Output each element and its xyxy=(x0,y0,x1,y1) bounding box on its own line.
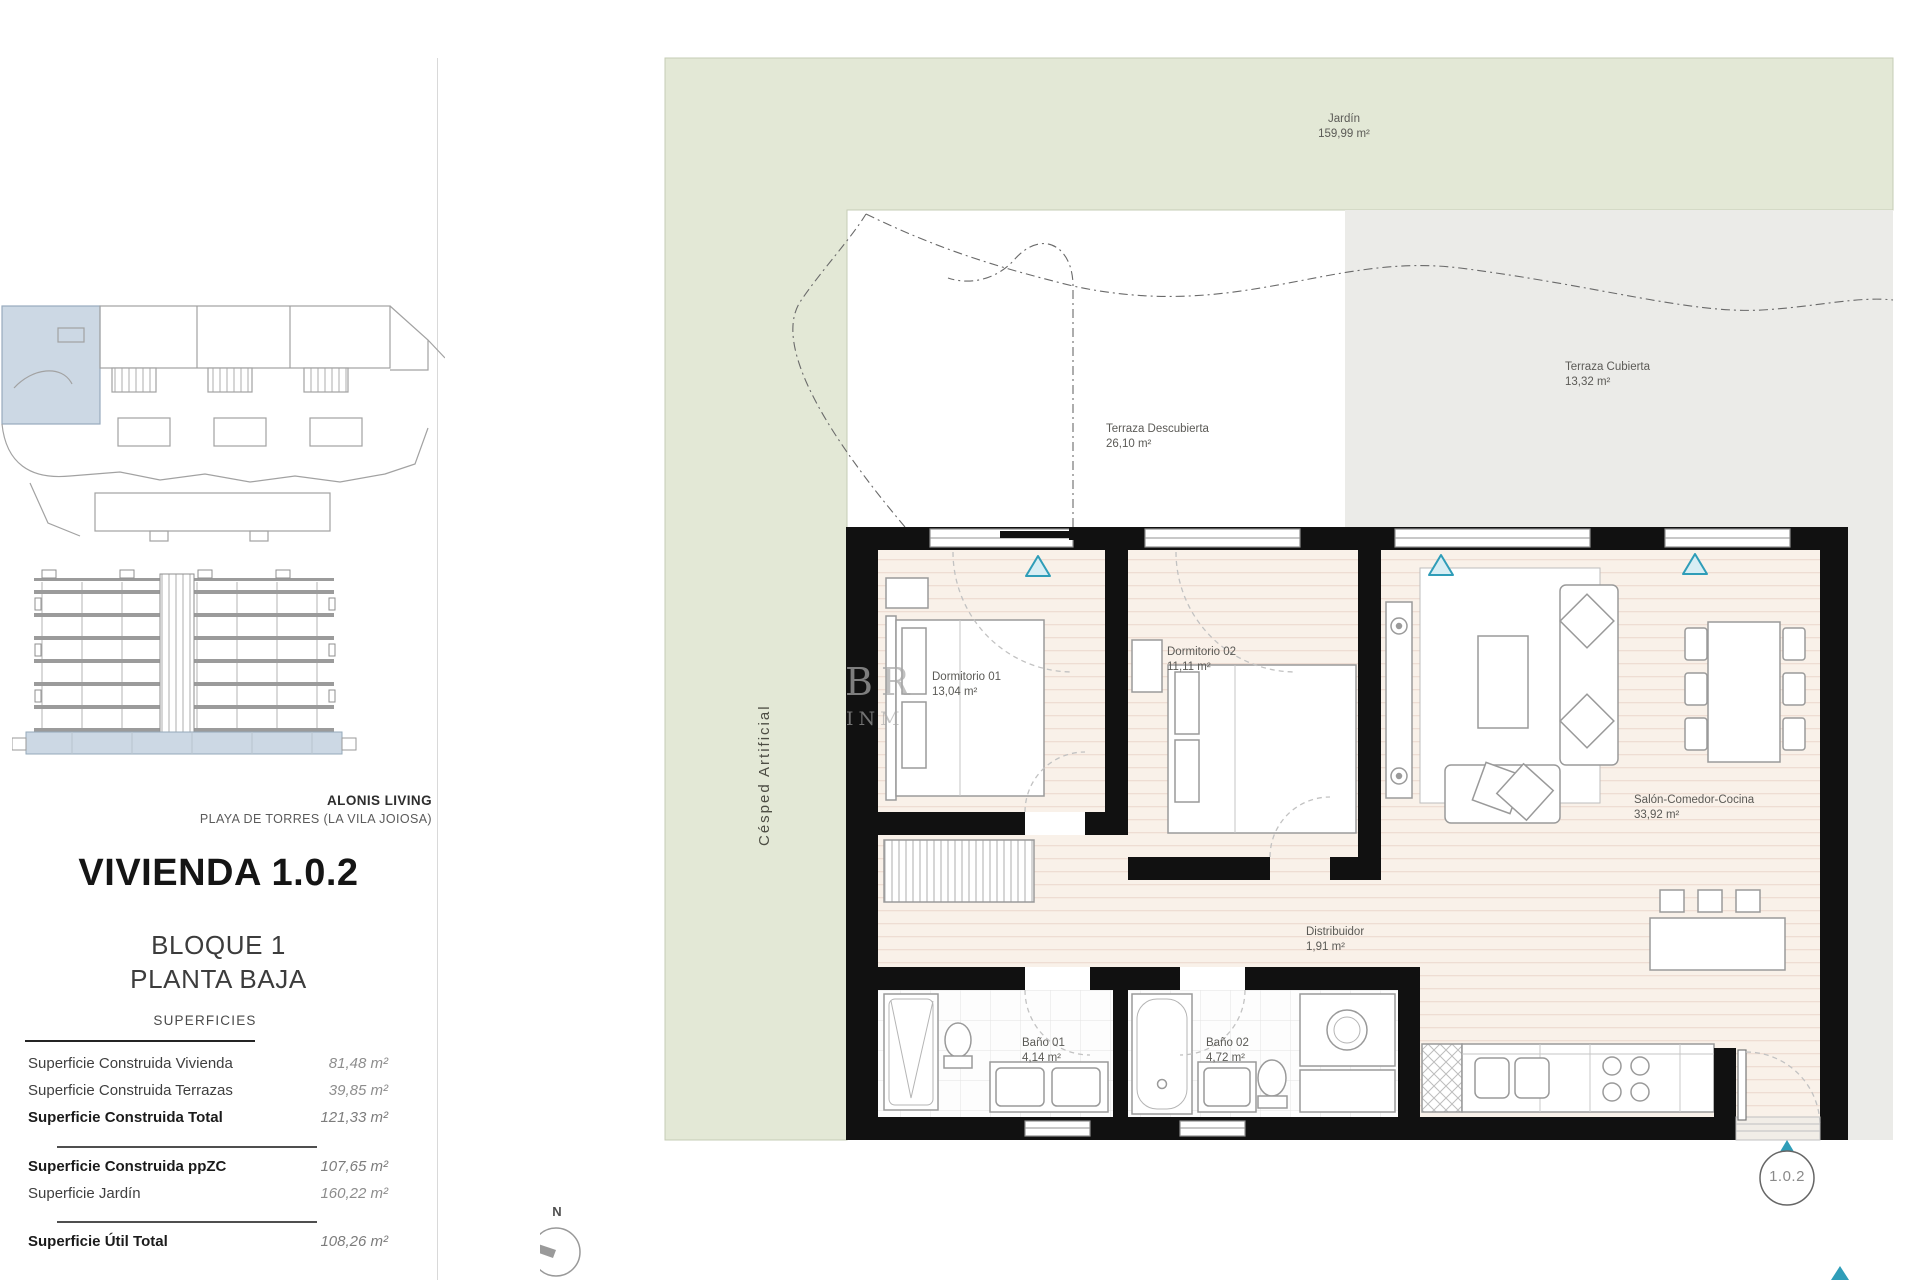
kitchen-island xyxy=(1650,918,1785,970)
stool xyxy=(1736,890,1760,912)
hob-burner xyxy=(1631,1057,1649,1075)
label-hall: Distribuidor 1,91 m² xyxy=(1306,925,1364,955)
chair xyxy=(1783,673,1805,705)
sink xyxy=(1475,1058,1509,1098)
drain xyxy=(1158,1080,1167,1089)
floor-plan-page: ALONIS LIVING PLAYA DE TORRES (LA VILA J… xyxy=(0,0,1920,1280)
row-label: Superficie Construida Vivienda xyxy=(28,1055,233,1072)
row-value: 107,65 m² xyxy=(320,1158,388,1175)
highlighted-ground-floor xyxy=(26,732,342,754)
label-bedroom2: Dormitorio 02 11,11 m² xyxy=(1167,645,1236,675)
surfaces-title-rule xyxy=(25,1040,255,1042)
label-bath1: Baño 01 4,14 m² xyxy=(1022,1036,1065,1066)
row-label: Superficie Construida ppZC xyxy=(28,1158,226,1175)
floorplan-drawing xyxy=(540,0,1920,1280)
building-elevation-drawing xyxy=(12,562,357,802)
highlighted-unit-region xyxy=(2,306,100,424)
label-bath2: Baño 02 4,72 m² xyxy=(1206,1036,1249,1066)
entrance-door-leaf xyxy=(1738,1050,1746,1120)
pillow xyxy=(902,702,926,768)
toilet xyxy=(1258,1060,1286,1096)
table-group-divider xyxy=(57,1221,317,1223)
label-garden: Jardín 159,99 m² xyxy=(1284,112,1404,142)
coffee-table xyxy=(1478,636,1528,728)
hob-burner xyxy=(1631,1083,1649,1101)
sidebar-divider xyxy=(437,58,438,1280)
pillow xyxy=(1175,740,1199,802)
toilet xyxy=(945,1023,971,1057)
hob-burner xyxy=(1603,1083,1621,1101)
wardrobe xyxy=(884,840,1034,902)
pillow xyxy=(1175,672,1199,734)
label-covered-terrace: Terraza Cubierta 13,32 m² xyxy=(1565,360,1650,390)
nightstand xyxy=(886,578,928,608)
row-label: Superficie Útil Total xyxy=(28,1233,168,1250)
table-row: Superficie Construida Vivienda 81,48 m² xyxy=(28,1055,388,1079)
page-title: VIVIENDA 1.0.2 xyxy=(0,852,437,895)
laundry-cabinet xyxy=(1300,1070,1395,1112)
compass-north-label: N xyxy=(547,1204,567,1219)
label-bedroom1: Dormitorio 01 13,04 m² xyxy=(932,670,1001,700)
watermark-text: INM xyxy=(846,708,905,730)
entry-arrow-icon xyxy=(1831,1266,1849,1280)
row-value: 39,85 m² xyxy=(329,1082,388,1099)
table-row: Superficie Construida Terrazas 39,85 m² xyxy=(28,1082,388,1106)
table-row: Superficie Útil Total 108,26 m² xyxy=(28,1233,388,1257)
tall-cabinet xyxy=(1422,1044,1462,1112)
project-name: ALONIS LIVING xyxy=(0,793,432,808)
hob-burner xyxy=(1603,1057,1621,1075)
label-living: Salón-Comedor-Cocina 33,92 m² xyxy=(1634,793,1754,823)
nightstand xyxy=(1132,640,1162,692)
row-value: 108,26 m² xyxy=(320,1233,388,1250)
table-row: Superficie Construida ppZC 107,65 m² xyxy=(28,1158,388,1182)
row-value: 81,48 m² xyxy=(329,1055,388,1072)
label-artificial-grass: Césped Artificial xyxy=(756,704,773,846)
block-label: BLOQUE 1 xyxy=(0,930,437,961)
unit-badge-label: 1.0.2 xyxy=(1762,1168,1812,1185)
row-label: Superficie Construida Total xyxy=(28,1109,223,1126)
sink xyxy=(1515,1058,1549,1098)
chair xyxy=(1685,673,1707,705)
table-row: Superficie Jardín 160,22 m² xyxy=(28,1185,388,1209)
toilet-tank xyxy=(1258,1096,1287,1108)
stool xyxy=(1660,890,1684,912)
basin xyxy=(1204,1068,1250,1106)
row-value: 160,22 m² xyxy=(320,1185,388,1202)
label-open-terrace: Terraza Descubierta 26,10 m² xyxy=(1106,422,1209,452)
site-plan-drawing xyxy=(0,268,445,558)
row-label: Superficie Jardín xyxy=(28,1185,141,1202)
toilet-tank xyxy=(944,1056,972,1068)
terrace-door-leaf xyxy=(1000,531,1075,538)
table-group-divider xyxy=(57,1146,317,1148)
compass-icon xyxy=(540,1228,580,1276)
basin xyxy=(996,1068,1044,1106)
chair xyxy=(1783,718,1805,750)
chair xyxy=(1685,628,1707,660)
watermark-text: BR xyxy=(845,660,918,704)
project-location: PLAYA DE TORRES (LA VILA JOIOSA) xyxy=(0,812,432,826)
row-label: Superficie Construida Terrazas xyxy=(28,1082,233,1099)
table-row: Superficie Construida Total 121,33 m² xyxy=(28,1109,388,1133)
stool xyxy=(1698,890,1722,912)
chair xyxy=(1783,628,1805,660)
entrance-threshold xyxy=(1736,1117,1820,1140)
row-value: 121,33 m² xyxy=(320,1109,388,1126)
basin xyxy=(1052,1068,1100,1106)
surfaces-table-title: SUPERFICIES xyxy=(0,1013,410,1028)
floor-label: PLANTA BAJA xyxy=(0,964,437,995)
chair xyxy=(1685,718,1707,750)
dining-table xyxy=(1708,622,1780,762)
